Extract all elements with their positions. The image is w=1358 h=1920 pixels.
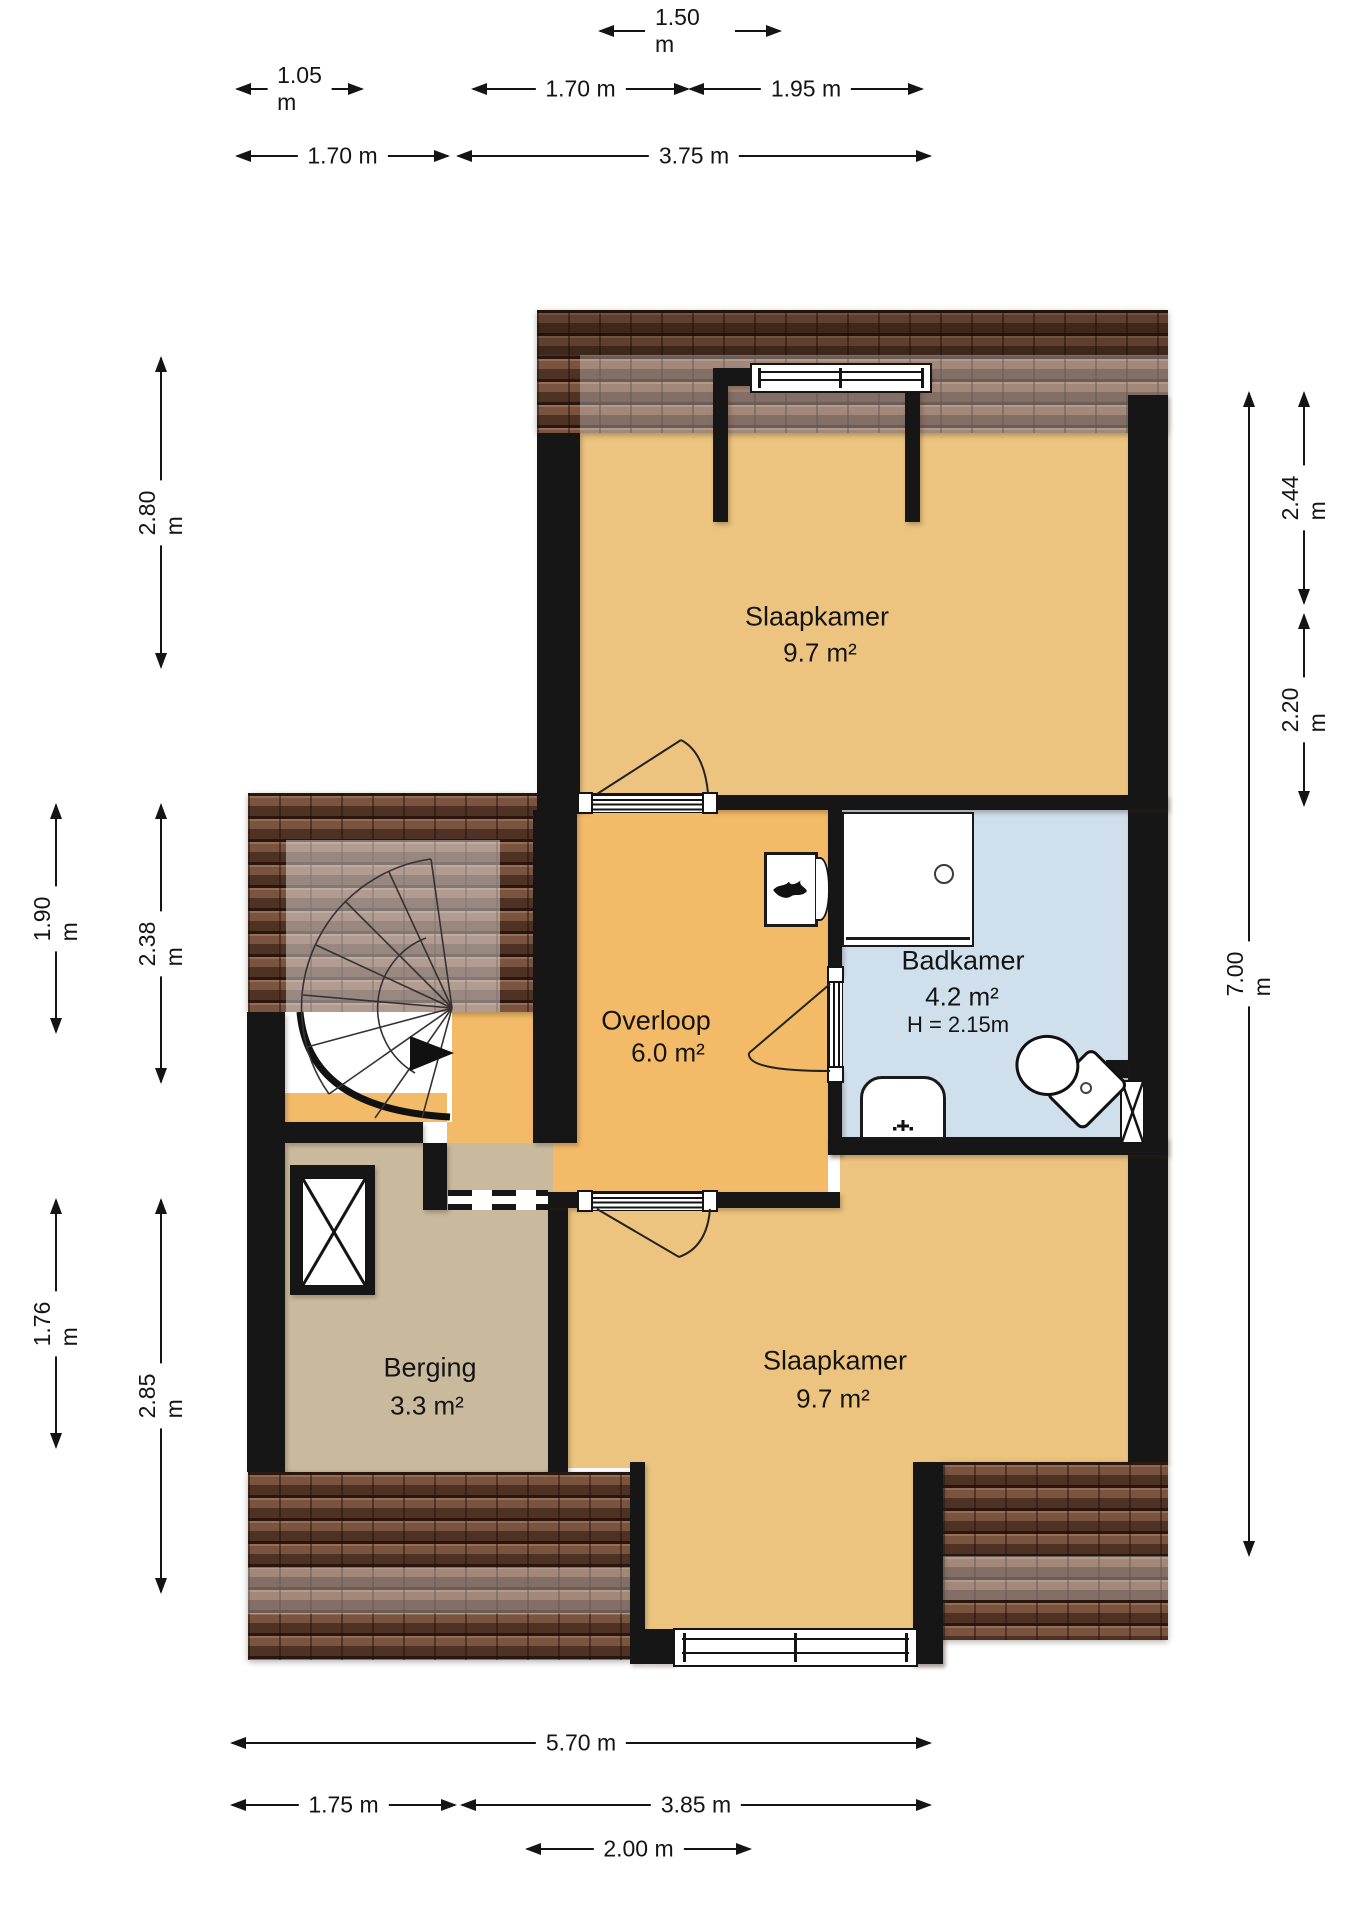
door-post (577, 1190, 593, 1212)
door-post (702, 1190, 718, 1212)
wall-bottom-sill-left (645, 1629, 675, 1664)
room-overloop-stair-strip (285, 1093, 447, 1122)
dash-bottom (448, 1204, 548, 1210)
x-hatch-shaft (301, 1177, 367, 1287)
open-passage-dashed (448, 1190, 548, 1210)
wall-bedroom-overloop-b (713, 795, 1168, 810)
dim-label: 7.00 m (1222, 942, 1276, 1007)
wall-berging-right (548, 1208, 568, 1472)
dim-bottom-385: 3.85 m (462, 1804, 930, 1806)
duct-x-icon (1122, 1082, 1143, 1142)
shower-drain-icon (934, 864, 954, 884)
door-post (827, 1066, 844, 1083)
wall-dormer-stub-left (713, 386, 728, 522)
sink (860, 1076, 946, 1140)
room-slaapkamer-bottom (568, 1208, 1128, 1468)
dim-bottom-200: 2.00 m (527, 1848, 750, 1850)
wall-left-top-block (537, 433, 580, 810)
wall-bedroom-bottom-top-b (713, 1192, 840, 1208)
door-sill-slaapkamer-top (586, 793, 717, 813)
dim-left-176: 1.76 m (55, 1200, 57, 1447)
room-slaapkamer-bottom-dormer (645, 1460, 913, 1632)
door-post (577, 792, 593, 814)
wall-left-overloop (533, 810, 577, 1143)
roof-bottom-left (248, 1472, 632, 1660)
dim-label: 5.70 m (536, 1730, 626, 1757)
label-overloop: Overloop (601, 1006, 711, 1037)
wall-stair-bottom (285, 1122, 423, 1143)
dim-right-220: 2.20 m (1303, 615, 1305, 805)
wall-right-outer (1128, 395, 1168, 1462)
label-badkamer-height: H = 2.15m (907, 1012, 1009, 1038)
dim-left-190: 1.90 m (55, 805, 57, 1032)
roof-bottom-left-light-band (248, 1568, 632, 1614)
wall-left-outer-mid (247, 1012, 285, 1472)
dim-label: 1.05 m (267, 62, 332, 116)
window-mullion (683, 1633, 686, 1662)
dim-right-244: 2.44 m (1303, 393, 1305, 603)
wall-stair-vertical (423, 1143, 447, 1210)
label-slaapkamer-bottom: Slaapkamer (763, 1346, 907, 1377)
roof-bottom-right-light-band (943, 1556, 1168, 1600)
dim-label: 2.00 m (593, 1836, 683, 1863)
window-mullion (839, 368, 842, 388)
dim-top-170b: 1.70 m (237, 155, 448, 157)
dim-bottom-570: 5.70 m (232, 1742, 930, 1744)
window-mullion (758, 368, 761, 388)
dim-top-150: 1.50 m (600, 30, 780, 32)
room-slaapkamer-bottom-right (840, 1152, 1128, 1208)
window-bottom-dormer (673, 1628, 918, 1667)
dim-top-195: 1.95 m (690, 88, 922, 90)
dim-label: 2.80 m (134, 480, 188, 545)
window-mullion (921, 368, 924, 388)
dim-right-700: 7.00 m (1248, 393, 1250, 1555)
sink-tap-icon (893, 1119, 913, 1133)
door-post (827, 966, 844, 983)
label-berging: Berging (383, 1353, 476, 1384)
label-berging-area: 3.3 m² (390, 1391, 464, 1422)
dim-left-280: 2.80 m (160, 358, 162, 667)
dim-top-375: 3.75 m (458, 155, 930, 157)
dim-label: 2.85 m (134, 1364, 188, 1429)
label-slaapkamer-top: Slaapkamer (745, 602, 889, 633)
dim-label: 1.90 m (29, 886, 83, 951)
dim-label: 1.76 m (29, 1291, 83, 1356)
shaft-x-icon (303, 1179, 365, 1285)
label-overloop-area: 6.0 m² (631, 1038, 705, 1069)
roof-left-stair-light (286, 840, 500, 1012)
dim-label: 1.50 m (645, 4, 735, 58)
dim-label: 1.95 m (761, 76, 851, 103)
label-slaapkamer-top-area: 9.7 m² (783, 638, 857, 669)
dim-label: 1.70 m (535, 76, 625, 103)
dim-top-170a: 1.70 m (473, 88, 688, 90)
dim-top-105: 1.05 m (237, 88, 362, 90)
dim-label: 1.70 m (297, 143, 387, 170)
wall-bottom-dormer-left (630, 1462, 645, 1664)
door-slab-badkamer (827, 982, 843, 1068)
wall-dormer-stub-right (905, 386, 920, 522)
dim-label: 1.75 m (298, 1792, 388, 1819)
floor-plan: Slaapkamer 9.7 m² Overloop 6.0 m² Badkam… (0, 0, 1358, 1920)
dim-label: 2.20 m (1277, 678, 1331, 743)
window-mullion (905, 1633, 908, 1662)
door-sill-slaapkamer-bottom (586, 1191, 717, 1211)
window-mullion (794, 1633, 797, 1662)
shower (842, 812, 974, 947)
wall-badkamer-left-upper (828, 810, 842, 975)
window-top-dormer (750, 363, 932, 393)
label-slaapkamer-bottom-area: 9.7 m² (796, 1384, 870, 1415)
label-badkamer: Badkamer (901, 946, 1024, 977)
label-badkamer-area: 4.2 m² (925, 982, 999, 1013)
dim-left-238: 2.38 m (160, 805, 162, 1082)
dim-bottom-175: 1.75 m (232, 1804, 455, 1806)
shower-rim (846, 937, 970, 940)
toilet (1005, 1022, 1123, 1129)
flame-icon (771, 875, 809, 903)
boiler (764, 852, 818, 927)
dim-label: 2.38 m (134, 911, 188, 976)
dim-label: 2.44 m (1277, 466, 1331, 531)
dim-label: 3.75 m (649, 143, 739, 170)
dim-left-285: 2.85 m (160, 1200, 162, 1592)
door-post (702, 792, 718, 814)
dim-label: 3.85 m (651, 1792, 741, 1819)
dash-top (448, 1190, 548, 1196)
roof-top-dark-band (537, 310, 1168, 355)
roof-bottom-right (943, 1462, 1168, 1640)
